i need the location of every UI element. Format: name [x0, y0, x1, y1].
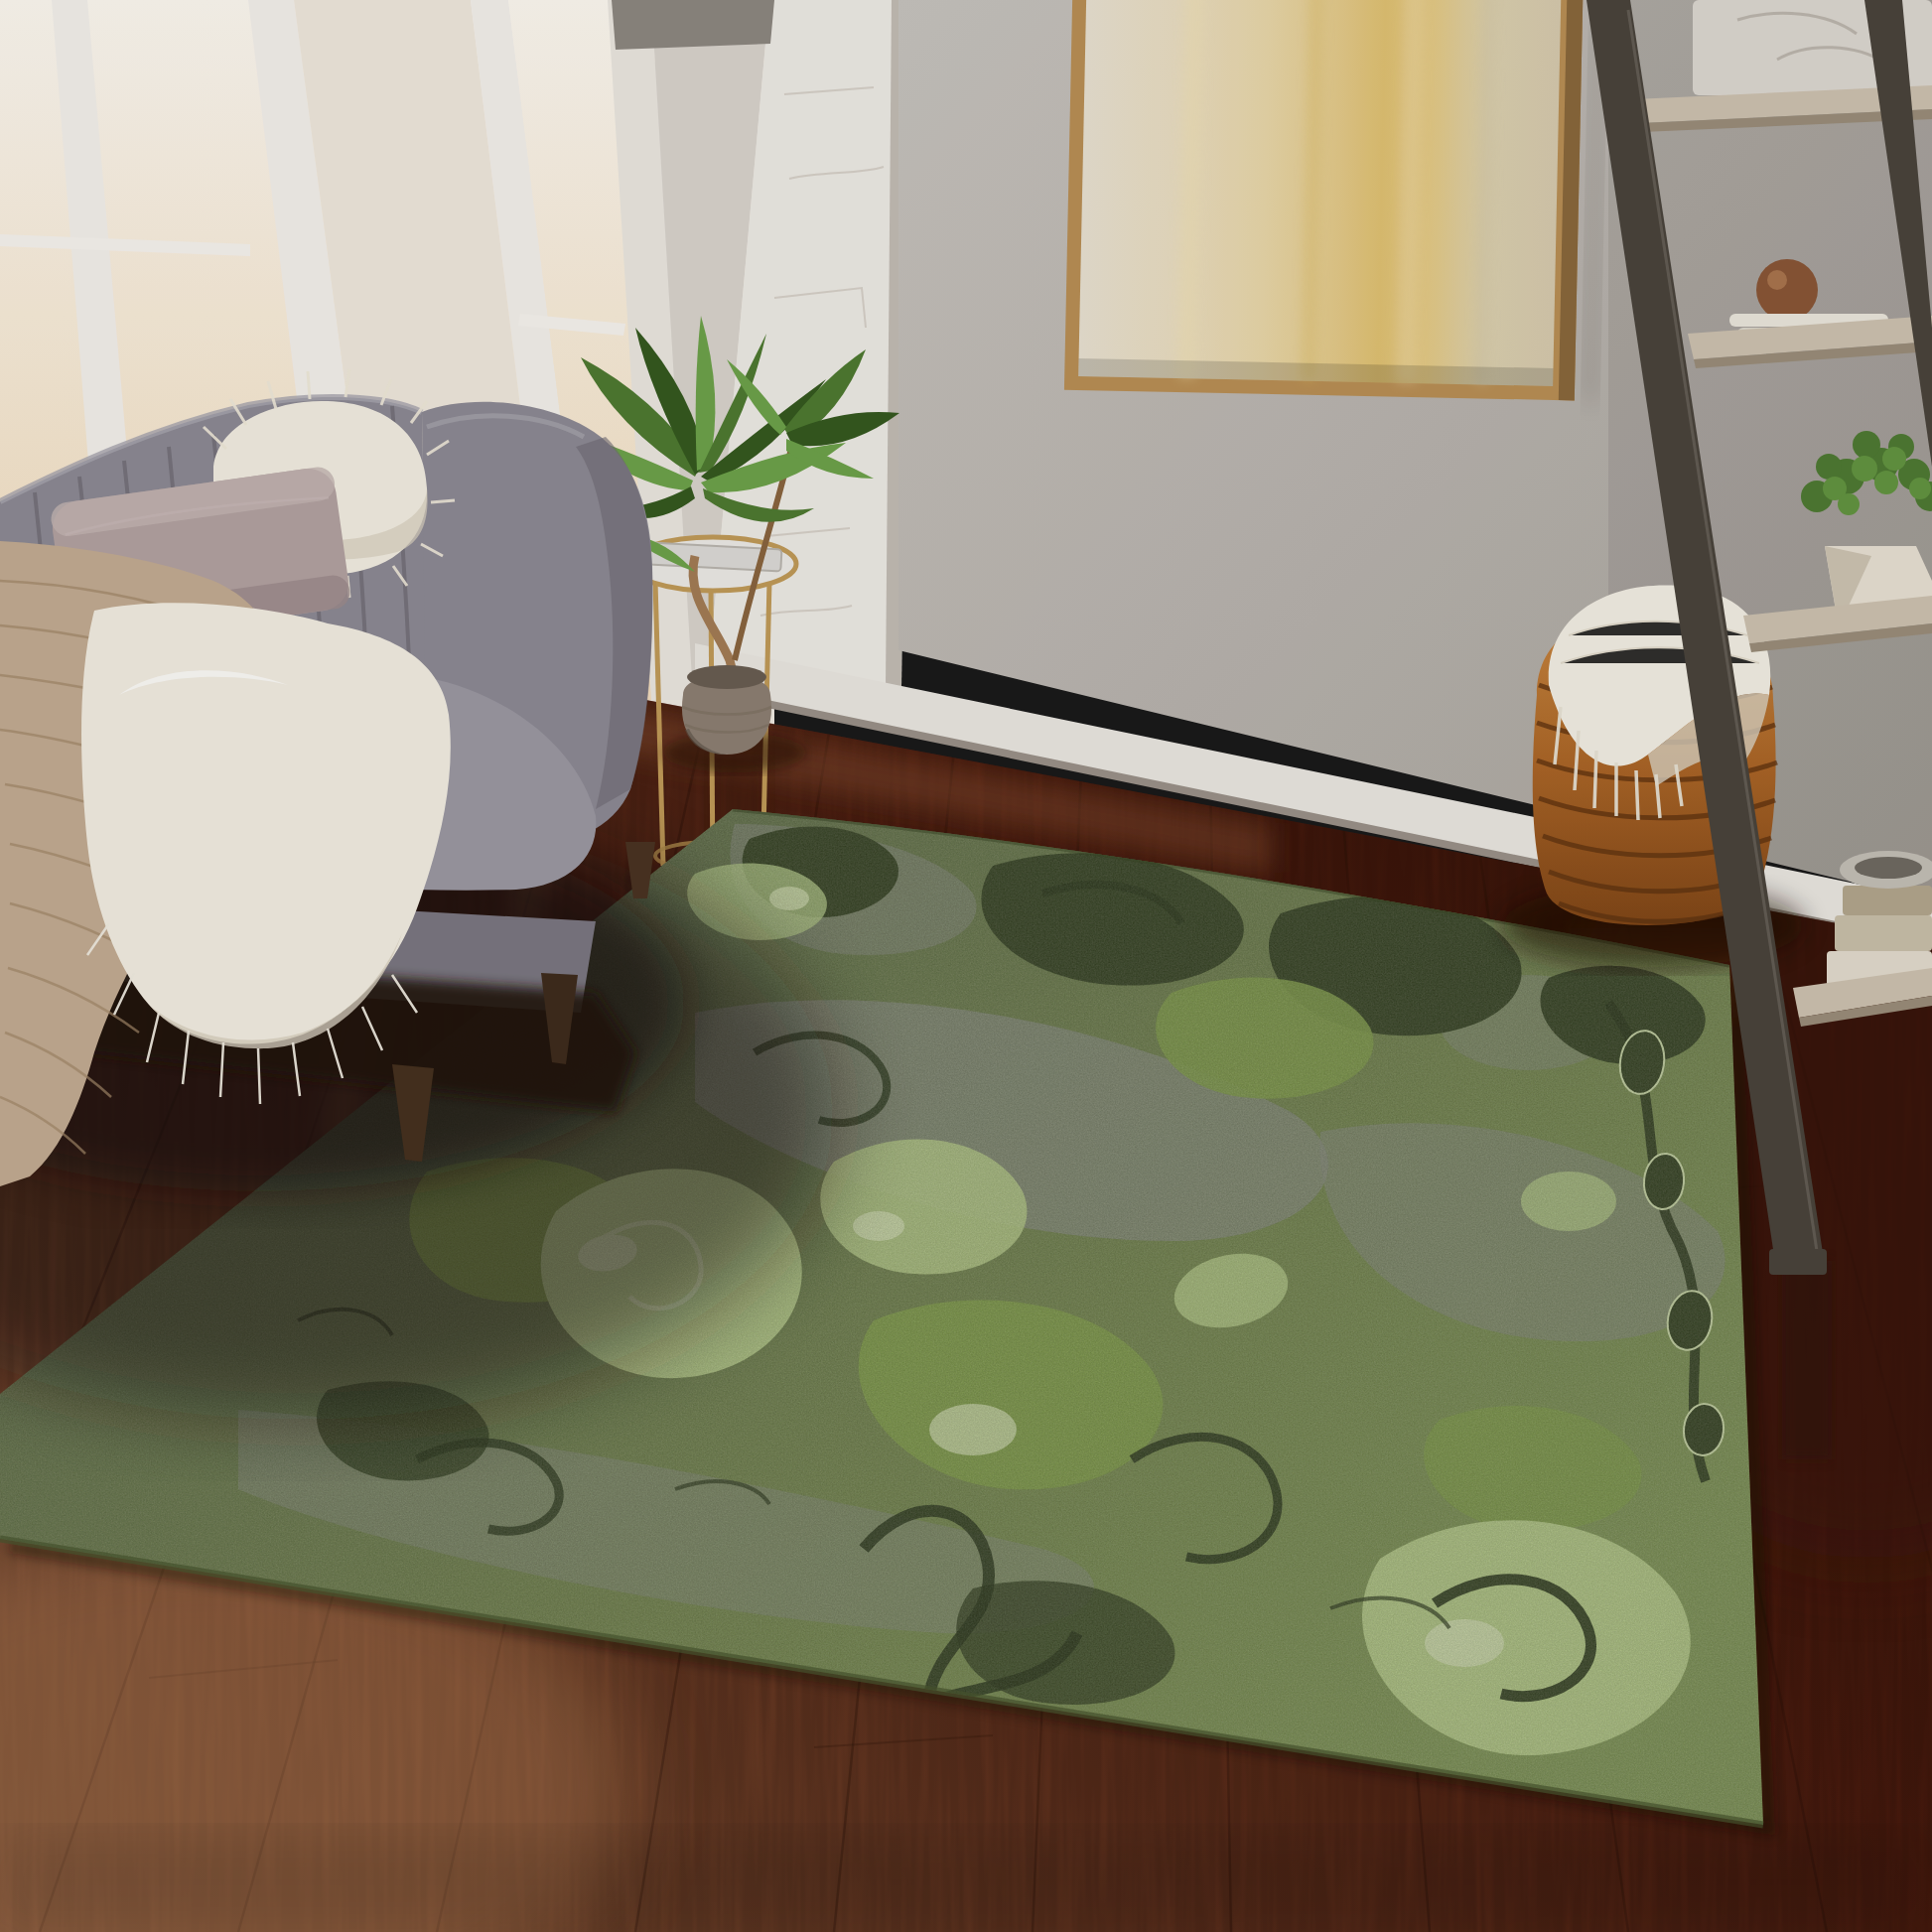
photo-vignette: [0, 0, 1932, 1932]
scene-canvas: [0, 0, 1932, 1932]
living-room-photo: [0, 0, 1932, 1932]
